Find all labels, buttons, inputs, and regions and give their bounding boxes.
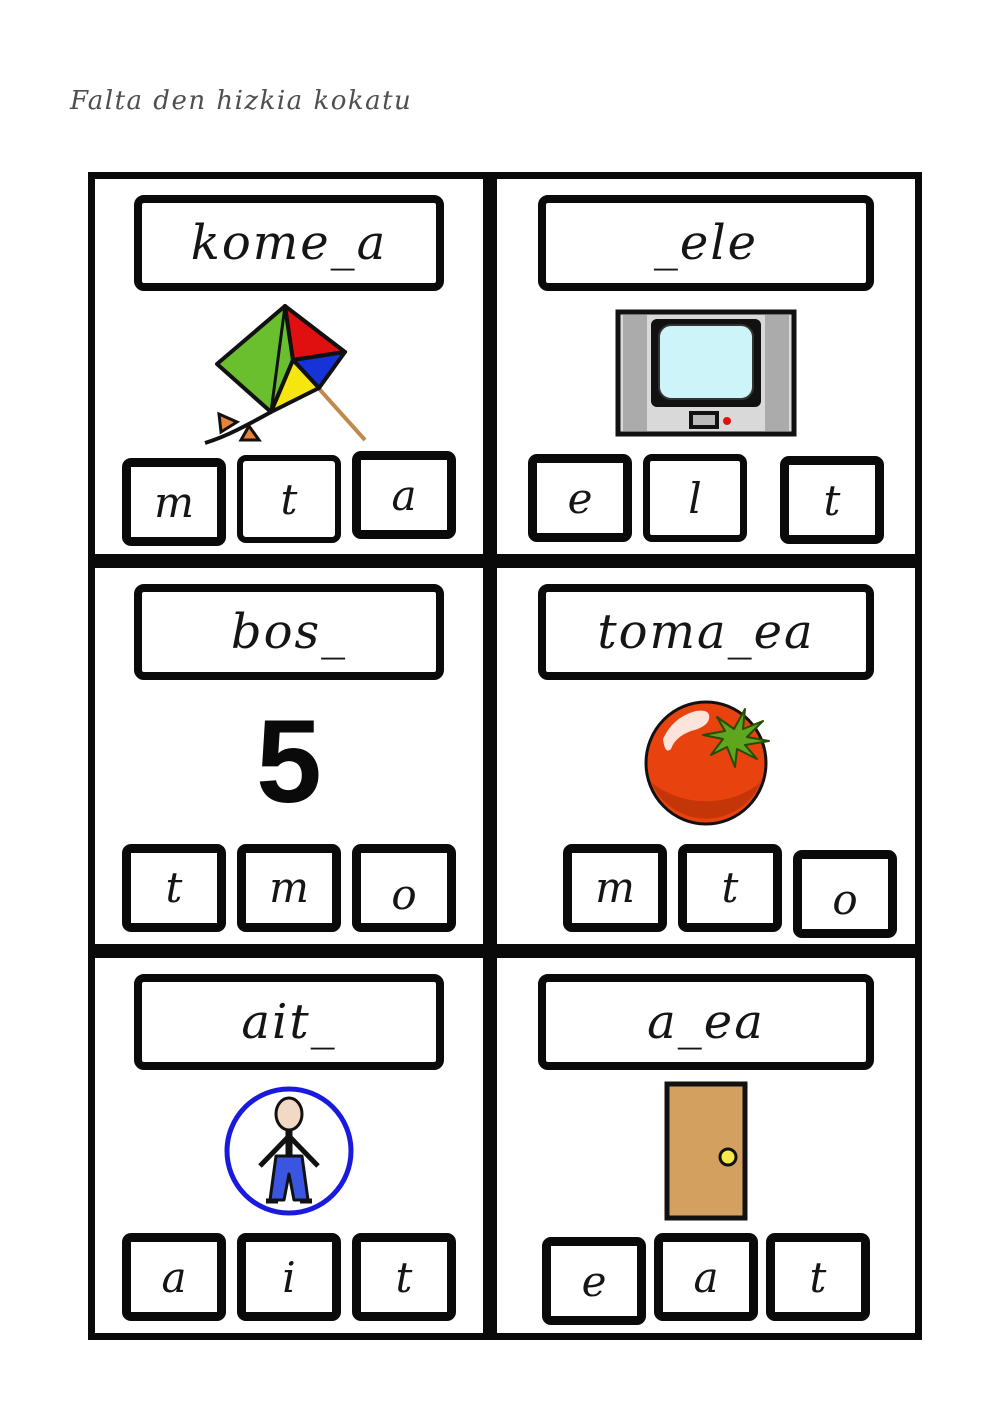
letter-options: t m o (113, 844, 465, 932)
page-title: Falta den hizkia kokatu (70, 86, 412, 116)
letter-options: m t a (113, 454, 465, 542)
card-door: a_ea e a t (490, 951, 922, 1340)
letter-tile[interactable]: l (643, 454, 747, 542)
letter-tile[interactable]: m (563, 844, 667, 932)
letter-label: t (810, 1253, 827, 1302)
card-five: bos_ 5 t m o (88, 561, 490, 950)
word-box: a_ea (538, 974, 874, 1070)
letter-label: e (568, 474, 593, 523)
word-box: bos_ (134, 584, 444, 680)
word-box: toma_ea (538, 584, 874, 680)
card-tomato: toma_ea m t o (490, 561, 922, 950)
letter-tile[interactable]: t (766, 1233, 870, 1321)
letter-label: t (396, 1253, 413, 1302)
letter-tile[interactable]: t (678, 844, 782, 932)
letter-tile[interactable]: e (542, 1237, 646, 1325)
letter-tile[interactable]: m (237, 844, 341, 932)
word-box: ait_ (134, 974, 444, 1070)
number-five: 5 (256, 703, 322, 821)
word-box: _ele (538, 195, 874, 291)
image-area (515, 1070, 897, 1233)
letter-tile[interactable]: i (237, 1233, 341, 1321)
letter-label: a (693, 1253, 718, 1302)
letter-tile[interactable]: a (122, 1233, 226, 1321)
letter-label: i (282, 1253, 295, 1302)
letter-label: o (832, 863, 857, 924)
letter-tile[interactable]: m (122, 458, 226, 546)
person-image (222, 1084, 356, 1218)
kite-image (197, 300, 382, 445)
letter-tile[interactable]: o (793, 850, 897, 938)
letter-label: o (391, 856, 416, 919)
image-area (113, 1070, 465, 1233)
letter-label: l (688, 474, 701, 523)
letter-label: a (391, 471, 416, 520)
letter-label: t (166, 863, 183, 912)
letter-label: e (582, 1257, 607, 1306)
image-area (113, 291, 465, 454)
word-box: kome_a (134, 195, 444, 291)
letter-tile[interactable]: o (352, 844, 456, 932)
card-father: ait_ a i t (88, 951, 490, 1340)
card-grid: kome_a m t a _ele (88, 172, 922, 1340)
letter-options: a i t (113, 1233, 465, 1321)
television-image (615, 309, 797, 437)
letter-options: e l t (515, 454, 897, 542)
letter-tile[interactable]: e (528, 454, 632, 542)
letter-options: m t o (515, 844, 897, 932)
letter-tile[interactable]: a (654, 1233, 758, 1321)
image-area: 5 (113, 680, 465, 843)
image-area (515, 680, 897, 843)
letter-tile[interactable]: t (780, 456, 884, 544)
letter-tile[interactable]: t (352, 1233, 456, 1321)
letter-label: m (154, 478, 194, 527)
image-area (515, 291, 897, 454)
letter-tile[interactable]: t (237, 455, 341, 543)
letter-label: t (722, 863, 739, 912)
letter-label: m (595, 863, 635, 912)
letter-label: t (824, 476, 841, 525)
letter-options: e a t (515, 1233, 897, 1321)
letter-label: t (281, 475, 298, 524)
tomato-image (641, 697, 771, 827)
letter-tile[interactable]: a (352, 451, 456, 539)
letter-label: a (161, 1253, 186, 1302)
door-image (664, 1081, 748, 1221)
card-kite: kome_a m t a (88, 172, 490, 561)
card-television: _ele e l t (490, 172, 922, 561)
letter-tile[interactable]: t (122, 844, 226, 932)
letter-label: m (269, 863, 309, 912)
